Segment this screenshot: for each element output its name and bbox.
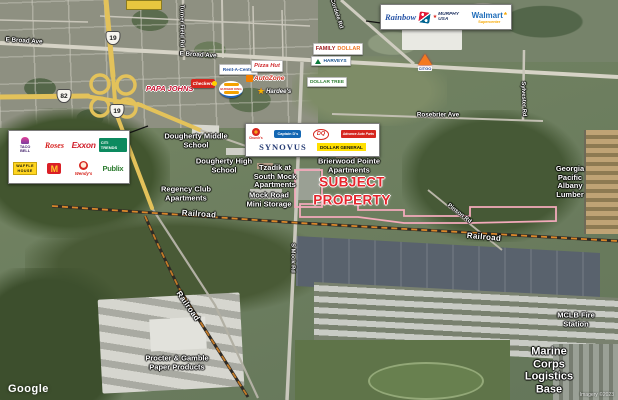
taco-bell-text: TACO BELL — [20, 145, 30, 153]
checkers-dot-icon — [212, 81, 217, 86]
murphy-usa-star-icon: ★ — [433, 14, 437, 20]
dollar-tree-logo: DOLLAR TREE — [307, 77, 347, 87]
central-box-row2: SYNOVUS DOLLAR GENERAL — [249, 142, 376, 152]
central-retailer-logo-box: Church's Captain D's DQ Advance Auto Par… — [245, 123, 380, 157]
label-regency-club: Regency Club Apartments — [161, 185, 211, 202]
walmart-logo: Walmart * Supercenter — [472, 11, 507, 24]
pg-white-roof — [149, 317, 207, 352]
checkers-logo: Checkers — [191, 79, 215, 88]
road-label-sylvester: Sylvester Rd — [519, 81, 527, 116]
advance-auto-parts-logo: Advance Auto Parts — [341, 130, 376, 138]
hardees-star-icon: ★ — [257, 86, 265, 97]
captain-ds-logo: Captain D's — [274, 130, 301, 138]
burger-king-text: BURGER KING — [220, 87, 241, 91]
citgo-triangle-icon — [418, 54, 432, 65]
hardees-text: Hardee's — [266, 89, 291, 95]
aerial-map[interactable]: E Broad Ave E Broad Ave Turner Field Rd … — [0, 0, 618, 400]
imagery-attribution: Imagery ©2023 — [580, 392, 614, 398]
dairy-queen-logo: DQ — [313, 129, 329, 140]
dollar-tree-text: DOLLAR TREE — [310, 80, 344, 85]
label-dougherty-high-school: Dougherty High School — [196, 157, 252, 174]
checkers-text: Checkers — [193, 81, 214, 86]
harveys-logo: HARVEYS — [311, 56, 351, 66]
walmart-wordmark-row: Walmart * — [472, 11, 507, 20]
publix-logo: Publix — [99, 158, 127, 181]
walmart-text: Walmart — [472, 11, 503, 20]
mcdonalds-logo: M — [40, 158, 68, 181]
wendys-face-icon — [79, 161, 88, 170]
roses-logo: Roses — [40, 134, 68, 157]
label-mclb-fire-station: MCLB Fire Station — [557, 311, 595, 328]
mcdonalds-arches-text: M — [47, 163, 61, 174]
family-dollar-logo: FAMILY DOLLAR — [313, 43, 363, 55]
waffle-house-logo: WAFFLE HOUSE — [11, 158, 39, 181]
label-subject-property: SUBJECT PROPERTY — [313, 173, 390, 208]
label-marine-corps-logistics-base: Marine Corps Logistics Base — [515, 346, 584, 397]
murphy-usa-text: MURPHY USA — [438, 12, 468, 22]
label-procter-gamble: Procter & Gamble Paper Products — [145, 354, 208, 371]
high-school-roof — [226, 148, 246, 155]
taco-bell-bell-icon — [21, 137, 29, 144]
citgo-text: CITGO — [418, 66, 433, 71]
murphy-usa-logo: ★ MURPHY USA — [433, 12, 469, 22]
walmart-spark-icon: * — [504, 11, 507, 20]
autozone-logo: AutoZone — [246, 75, 284, 82]
citi-trends-text: CITI TRENDS — [99, 138, 127, 152]
wendys-logo: Wendy's — [70, 158, 98, 181]
synovus-logo: SYNOVUS — [259, 142, 307, 152]
rainbow-logo: Rainbow — [385, 12, 416, 22]
autozone-text: AutoZone — [254, 75, 284, 82]
label-mock-road-mini-storage: Mock Road Mini Storage — [246, 191, 291, 208]
citi-trends-logo: CITI TRENDS — [99, 134, 127, 157]
northeast-retailer-logo-box: Rainbow ★ MURPHY USA Walmart * Supercent… — [380, 4, 512, 30]
label-dougherty-middle-school: Dougherty Middle School — [164, 132, 227, 149]
churchs-text: Church's — [249, 136, 263, 140]
churchs-circle-icon — [252, 128, 260, 136]
road-label-rosebrier: Rosebrier Ave — [417, 111, 459, 118]
road-label-turner-field: Turner Field Rd — [178, 5, 185, 47]
citgo-logo: CITGO — [416, 52, 434, 72]
roses-text: Roses — [45, 141, 64, 150]
taco-bell-logo: TACO BELL — [11, 134, 39, 157]
papa-johns-logo: PAPA JOHNS — [146, 84, 193, 93]
churchs-chicken-logo: Church's — [249, 128, 263, 140]
dominos-pizza-logo-icon — [418, 11, 430, 23]
label-tzadik-apartments: Tzadik at South Mock Apartments — [254, 164, 297, 190]
family-dollar-word1: FAMILY — [316, 46, 336, 52]
hardees-logo: ★ Hardee's — [257, 86, 291, 97]
exxon-text: Exxon — [72, 140, 96, 150]
waffle-house-text: WAFFLE HOUSE — [13, 162, 37, 175]
rent-a-center-text: Rent-A-Center — [223, 67, 254, 72]
harveys-arrow-icon — [315, 59, 321, 64]
oval-track — [368, 362, 484, 400]
pizza-hut-text: Pizza Hut — [254, 63, 280, 69]
dollar-general-logo: DOLLAR GENERAL — [317, 143, 366, 151]
burger-king-logo: BURGER KING — [219, 81, 243, 98]
google-watermark: Google — [8, 383, 49, 395]
family-dollar-word2: DOLLAR — [337, 46, 360, 52]
burger-king-bun-bottom-icon — [224, 91, 239, 94]
autozone-square-icon — [246, 75, 253, 82]
walmart-supercenter-text: Supercenter — [478, 20, 500, 24]
label-brierwood-pointe: Brierwood Pointe Apartments — [318, 157, 380, 174]
central-box-row1: Church's Captain D's DQ Advance Auto Par… — [249, 128, 376, 140]
wendys-text: Wendy's — [75, 171, 92, 176]
label-georgia-pacific: Georgia Pacific Albany Lumber — [546, 165, 594, 200]
harveys-text: HARVEYS — [323, 59, 346, 64]
highway-guide-sign — [126, 0, 162, 10]
publix-text: Publix — [103, 164, 124, 173]
exxon-logo: Exxon — [70, 134, 98, 157]
west-retailer-logo-box: TACO BELL Roses Exxon CITI TRENDS WAFFLE… — [8, 130, 130, 184]
road-label-s-mock: S Mock Rd — [289, 243, 296, 273]
pizza-hut-logo: Pizza Hut — [251, 60, 283, 72]
